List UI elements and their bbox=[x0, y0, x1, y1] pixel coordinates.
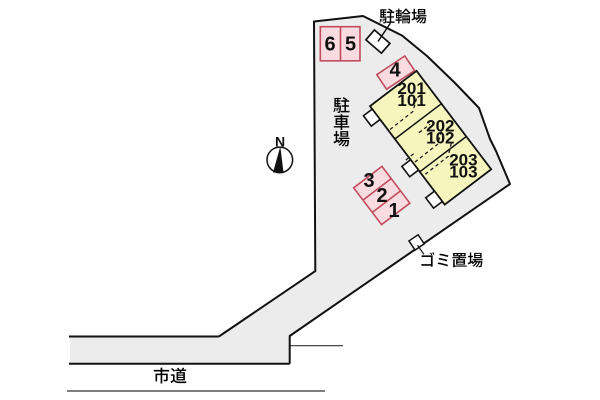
svg-text:102: 102 bbox=[426, 128, 454, 147]
svg-text:4: 4 bbox=[389, 60, 401, 82]
svg-text:3: 3 bbox=[363, 170, 374, 192]
svg-text:103: 103 bbox=[449, 162, 477, 181]
svg-text:5: 5 bbox=[345, 34, 356, 56]
svg-text:6: 6 bbox=[324, 34, 335, 56]
svg-text:101: 101 bbox=[397, 91, 425, 110]
svg-text:2: 2 bbox=[376, 185, 387, 207]
svg-text:1: 1 bbox=[388, 200, 399, 222]
